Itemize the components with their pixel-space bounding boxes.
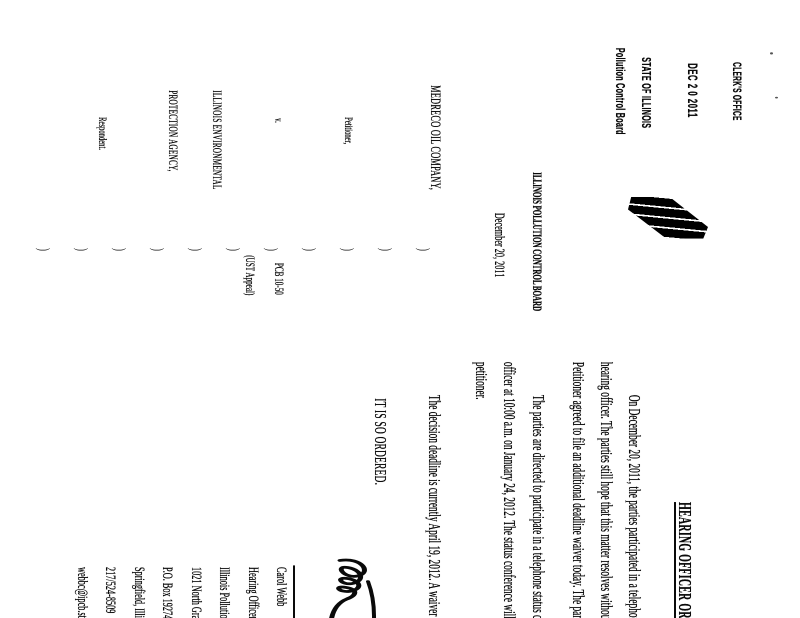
caption-divider-glyph: ): [414, 248, 432, 251]
order-paragraph2-line3: petitioner.: [471, 362, 491, 400]
caption-divider-glyph: ): [34, 248, 52, 251]
caption-respondent-name-line1: ILLINOIS ENVIRONMENTAL: [209, 90, 225, 189]
stamp-clerks-office: CLERK'S OFFICE: [730, 62, 744, 121]
contact-title: Hearing Officer: [244, 567, 261, 618]
order-decision-deadline-line: The decision deadline is currently April…: [424, 395, 444, 616]
order-heading: HEARING OFFICER ORDER: [674, 502, 695, 618]
order-paragraph2-line1: The parties are directed to participate …: [528, 395, 548, 618]
caption-petitioner-name: MEDRECO OIL COMPANY,: [426, 85, 443, 190]
order-paragraph1-line1: On December 20, 2011, the parties partic…: [624, 395, 644, 618]
caption-petitioner-label: Petitioner,: [341, 117, 356, 144]
contact-phone: 217/524-8509: [101, 567, 118, 613]
court-title: ILLINOIS POLLUTION CONTROL BOARD: [529, 172, 545, 311]
signature-scrawl: [314, 553, 376, 618]
so-ordered-text: IT IS SO ORDERED.: [370, 398, 390, 485]
order-date: December 20, 2011: [490, 213, 507, 278]
caption-respondent-name-line2: PROTECTION AGENCY,: [165, 90, 181, 171]
stamp-received-date: DEC 2 0 2011: [685, 63, 701, 118]
contact-address-line1: 1021 North Grand Avenue East: [187, 567, 204, 618]
contact-name: Carol Webb: [272, 567, 289, 606]
caption-divider-glyph: ): [262, 248, 280, 251]
contact-email: webbc@ipcb.state.il.us: [73, 567, 90, 618]
caption-divider-glyph: ): [224, 248, 242, 251]
contact-organization: Illinois Pollution Control Board: [215, 567, 232, 618]
caption-divider-glyph: ): [72, 248, 90, 251]
document-page: CLERK'S OFFICE DEC 2 0 2011 STATE OF ILL…: [0, 0, 800, 618]
caption-divider-glyph: ): [148, 248, 166, 251]
caption-divider-glyph: ): [300, 248, 318, 251]
caption-case-type: (UST Appeal): [242, 255, 258, 295]
caption-divider-glyph: ): [186, 248, 204, 251]
caption-versus: v.: [271, 118, 286, 123]
stamp-state-of-illinois: STATE OF ILLINOIS: [639, 57, 654, 128]
contact-address-line3: Springfield, Illinois 62794-9274: [130, 567, 147, 618]
caption-divider-glyph: ): [376, 248, 394, 251]
scan-speck: [775, 97, 778, 99]
caption-respondent-label: Respondent.: [95, 117, 110, 150]
caption-divider-glyph: ): [338, 248, 356, 251]
order-paragraph1-line3: Petitioner agreed to file an additional …: [568, 362, 588, 618]
scanned-document-canvas: CLERK'S OFFICE DEC 2 0 2011 STATE OF ILL…: [0, 0, 800, 618]
caption-docket-number: PCB 10-50: [271, 263, 287, 295]
order-paragraph1-line2: hearing officer. The parties still hope …: [596, 362, 616, 618]
scan-speck: [770, 52, 773, 54]
signature-rule: [293, 565, 295, 618]
ink-stamp-blob: [628, 197, 708, 239]
caption-divider-glyph: ): [110, 248, 128, 251]
order-paragraph2-line2: officer at 10:00 a.m. on January 24, 201…: [499, 362, 519, 618]
contact-address-line2: P.O. Box 19274: [158, 567, 175, 618]
stamp-pollution-control-board: Pollution Control Board: [613, 48, 628, 135]
